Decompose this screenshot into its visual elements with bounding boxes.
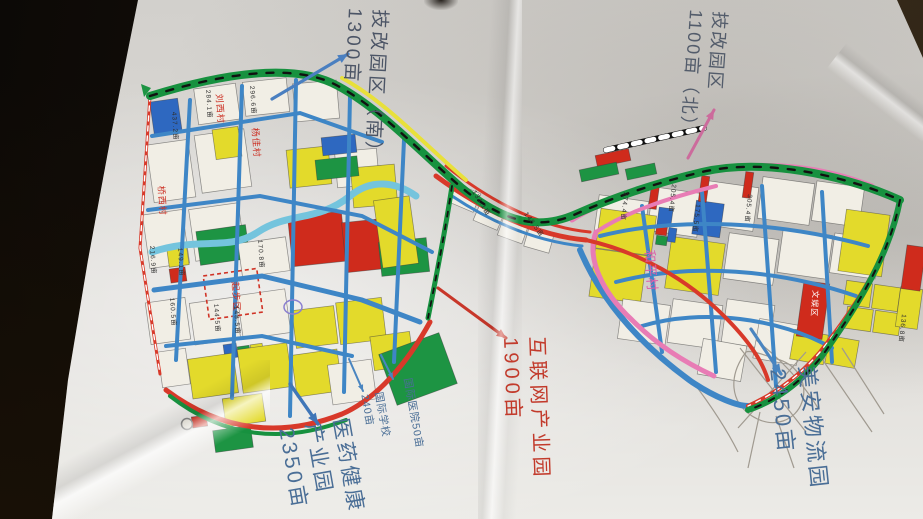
map-parcel — [655, 235, 667, 245]
map-label: 桥西村 — [156, 185, 169, 216]
map-parcel — [871, 284, 900, 311]
pencil-interchange-sketch — [842, 348, 884, 414]
pencil-interchange-sketch — [820, 356, 872, 432]
map-parcel — [625, 163, 657, 180]
map-parcel — [158, 348, 191, 388]
map-parcel — [697, 338, 747, 381]
map-parcel — [212, 126, 242, 159]
map-label: 文娱区 — [809, 290, 821, 318]
pencil-interchange-sketch — [738, 352, 806, 428]
map-parcel — [665, 236, 726, 295]
roundabout — [182, 419, 193, 430]
map-road — [606, 128, 704, 150]
pencil-interchange-sketch — [776, 416, 794, 468]
map-parcel — [667, 228, 677, 243]
map-parcel — [315, 156, 359, 180]
pencil-interchange-sketch — [748, 412, 760, 468]
map-label: 刘西村 — [214, 93, 227, 124]
arrow-internet — [438, 288, 506, 338]
map-parcel — [321, 134, 357, 155]
paper-sheet: 和平村杨佳村桥西村刘西村起步区文娱区284.1亩296.6亩437.2亩216.… — [0, 0, 923, 519]
photo-scene: 和平村杨佳村桥西村刘西村起步区文娱区284.1亩296.6亩437.2亩216.… — [0, 0, 923, 519]
map-label: 和平村 — [642, 249, 660, 292]
pencil-interchange-sketch — [690, 378, 738, 452]
planning-map: 和平村杨佳村桥西村刘西村起步区文娱区284.1亩296.6亩437.2亩216.… — [0, 0, 923, 519]
map-parcel — [901, 245, 923, 291]
map-parcel — [237, 343, 293, 394]
map-label: 杨佳村 — [250, 127, 263, 158]
